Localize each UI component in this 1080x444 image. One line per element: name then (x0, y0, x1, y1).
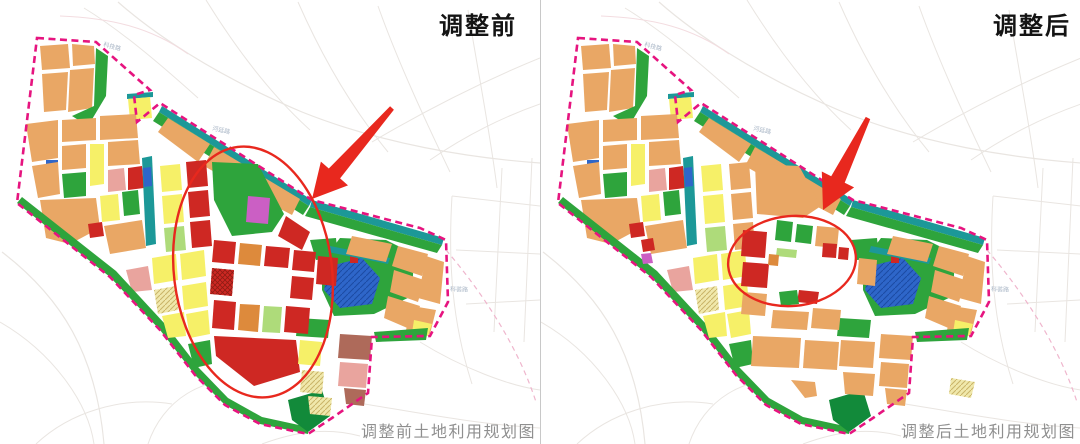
land-parcel (42, 72, 68, 112)
land-parcel (40, 44, 70, 70)
land-parcel (768, 254, 779, 266)
background-road (446, 250, 536, 402)
background-road (839, 2, 929, 152)
land-parcel (609, 68, 635, 112)
land-parcel (128, 166, 144, 190)
land-parcel (68, 68, 94, 112)
land-parcel (292, 250, 316, 272)
land-parcel-hatch (300, 370, 324, 394)
land-parcel (100, 114, 138, 140)
background-road (961, 342, 1080, 390)
background-road (919, 6, 991, 172)
land-parcel (669, 166, 685, 190)
land-use-map-after: 科技路河延路科荟路 (541, 0, 1080, 444)
land-parcel (160, 164, 182, 192)
background-road (987, 250, 1077, 402)
land-parcel (703, 194, 725, 224)
background-road (541, 322, 635, 444)
land-parcel (262, 306, 282, 333)
land-parcel (629, 222, 645, 238)
background-road (0, 322, 94, 444)
land-parcel (641, 238, 655, 252)
land-parcel (338, 334, 372, 360)
land-parcel (62, 118, 96, 142)
land-parcel (613, 44, 636, 66)
land-parcel-hatch (154, 286, 178, 314)
background-road (543, 252, 645, 444)
road-name-label: 科荟路 (991, 285, 1009, 294)
land-parcel (843, 372, 875, 396)
land-parcel (122, 190, 140, 216)
land-parcel (641, 253, 653, 264)
panel-before: 科技路河延路科荟路 调整前 调整前土地利用规划图 (0, 0, 540, 444)
land-parcel (603, 144, 627, 170)
map-caption-before: 调整前土地利用规划图 (361, 418, 536, 442)
land-parcel (822, 243, 837, 258)
land-parcel (811, 308, 841, 330)
land-parcel (88, 222, 104, 238)
land-parcel (104, 220, 146, 254)
background-road (494, 168, 502, 332)
land-parcel (693, 254, 719, 284)
land-parcel (771, 310, 809, 330)
land-parcel (684, 167, 693, 187)
background-road (913, 58, 1080, 142)
background-road (1035, 168, 1043, 332)
land-parcel (238, 243, 262, 266)
land-parcel (581, 44, 611, 70)
land-parcel (108, 168, 126, 192)
land-parcel (641, 114, 679, 140)
land-parcel-hatch (210, 268, 234, 296)
land-parcel-hatch (949, 378, 975, 398)
land-parcel (731, 192, 753, 220)
land-parcel (775, 220, 793, 242)
land-parcel (108, 140, 140, 166)
land-parcel (344, 388, 366, 406)
background-road (1007, 300, 1080, 304)
land-parcel (741, 292, 767, 316)
land-parcel (190, 220, 212, 248)
background-road (36, 402, 172, 444)
land-parcel (701, 164, 723, 192)
land-parcel (663, 190, 681, 216)
land-parcel (631, 144, 645, 186)
background-road (2, 252, 104, 444)
land-parcel (62, 172, 86, 198)
background-road (524, 158, 532, 342)
land-parcel (857, 258, 877, 286)
land-parcel (879, 362, 909, 388)
land-parcel (212, 240, 236, 264)
land-parcel (741, 262, 769, 288)
land-parcel (284, 306, 310, 334)
land-parcel (100, 194, 120, 222)
land-use-comparison-page: 科技路河延路科荟路 调整前 调整前土地利用规划图 科技路河延路科荟路 调整后 调… (0, 0, 1080, 444)
land-parcel (238, 304, 260, 332)
land-parcel (795, 224, 813, 244)
land-parcel (751, 336, 801, 368)
land-parcel (62, 144, 86, 170)
background-road (1065, 158, 1073, 342)
land-parcel (264, 246, 290, 268)
land-parcel (180, 250, 206, 280)
land-parcel (885, 388, 907, 406)
land-parcel (603, 172, 627, 198)
land-parcel (583, 72, 609, 112)
land-parcel (641, 194, 661, 222)
land-parcel (879, 334, 913, 360)
land-parcel (649, 168, 667, 192)
land-parcel (838, 247, 849, 260)
land-parcel (779, 290, 799, 306)
land-parcel (649, 140, 681, 166)
land-parcel (212, 300, 236, 330)
land-parcel (603, 118, 637, 142)
map-caption-after: 调整后土地利用规划图 (901, 418, 1076, 442)
land-parcel-hatch (308, 396, 332, 416)
road-name-label: 科荟路 (450, 285, 468, 294)
land-parcel (741, 230, 767, 258)
background-road (993, 196, 1080, 206)
background-road (372, 58, 540, 142)
land-parcel (246, 196, 270, 224)
road-name-label: 河延路 (212, 124, 231, 136)
land-parcel (188, 190, 210, 218)
background-road (206, 0, 310, 130)
land-parcel (705, 226, 727, 252)
land-parcel (290, 276, 314, 300)
land-use-map-before: 科技路河延路科荟路 (0, 0, 540, 444)
road-name-label: 河延路 (753, 124, 772, 136)
land-parcel (839, 340, 875, 368)
land-parcel (72, 44, 95, 66)
background-road (577, 402, 713, 444)
land-parcel (837, 318, 871, 338)
land-parcel (316, 256, 338, 286)
land-parcel-hatch (695, 286, 719, 314)
map-title-before: 调整前 (439, 6, 517, 41)
map-title-after: 调整后 (993, 6, 1071, 41)
panel-after: 科技路河延路科荟路 调整后 调整后土地利用规划图 (540, 0, 1080, 444)
land-parcel (338, 362, 368, 388)
background-road (466, 300, 540, 304)
land-parcel (90, 144, 104, 186)
land-parcel (729, 162, 751, 190)
background-road (452, 196, 540, 206)
land-parcel (182, 282, 208, 310)
land-parcel (143, 167, 152, 187)
land-parcel (803, 340, 839, 370)
background-road (747, 0, 851, 130)
